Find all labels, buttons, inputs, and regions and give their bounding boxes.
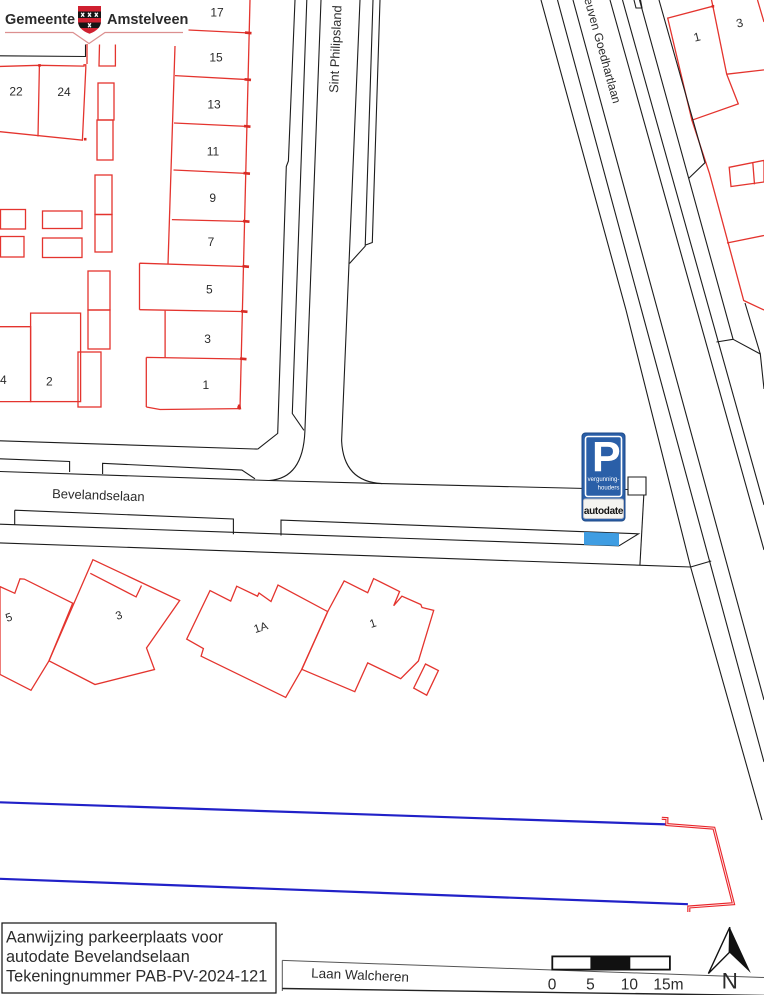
svg-text:autodate Bevelandselaan: autodate Bevelandselaan xyxy=(6,948,190,966)
svg-text:1: 1 xyxy=(203,378,210,392)
svg-text:4: 4 xyxy=(0,373,7,387)
svg-text:22: 22 xyxy=(9,85,23,99)
svg-text:autodate: autodate xyxy=(584,506,624,517)
svg-text:15m: 15m xyxy=(653,977,683,994)
svg-text:17: 17 xyxy=(210,6,224,20)
svg-text:Amstelveen: Amstelveen xyxy=(107,12,188,28)
svg-text:P: P xyxy=(592,434,621,482)
svg-text:10: 10 xyxy=(621,977,639,994)
svg-text:24: 24 xyxy=(57,85,71,99)
svg-text:Gemeente: Gemeente xyxy=(5,12,75,28)
svg-text:5: 5 xyxy=(586,977,595,994)
svg-text:Aanwijzing parkeerplaats voor: Aanwijzing parkeerplaats voor xyxy=(6,929,224,947)
svg-text:houders: houders xyxy=(598,486,620,492)
svg-text:15: 15 xyxy=(209,51,223,65)
svg-text:7: 7 xyxy=(208,235,215,249)
svg-text:3: 3 xyxy=(204,332,211,346)
svg-text:13: 13 xyxy=(207,98,221,112)
svg-text:vergunning-: vergunning- xyxy=(588,477,620,483)
svg-text:5: 5 xyxy=(206,283,213,297)
svg-text:N: N xyxy=(722,969,738,994)
svg-text:Tekeningnummer PAB-PV-2024-121: Tekeningnummer PAB-PV-2024-121 xyxy=(6,968,267,986)
svg-text:2: 2 xyxy=(46,375,53,389)
svg-text:11: 11 xyxy=(207,145,220,159)
svg-text:9: 9 xyxy=(209,191,216,205)
svg-text:0: 0 xyxy=(548,977,557,994)
